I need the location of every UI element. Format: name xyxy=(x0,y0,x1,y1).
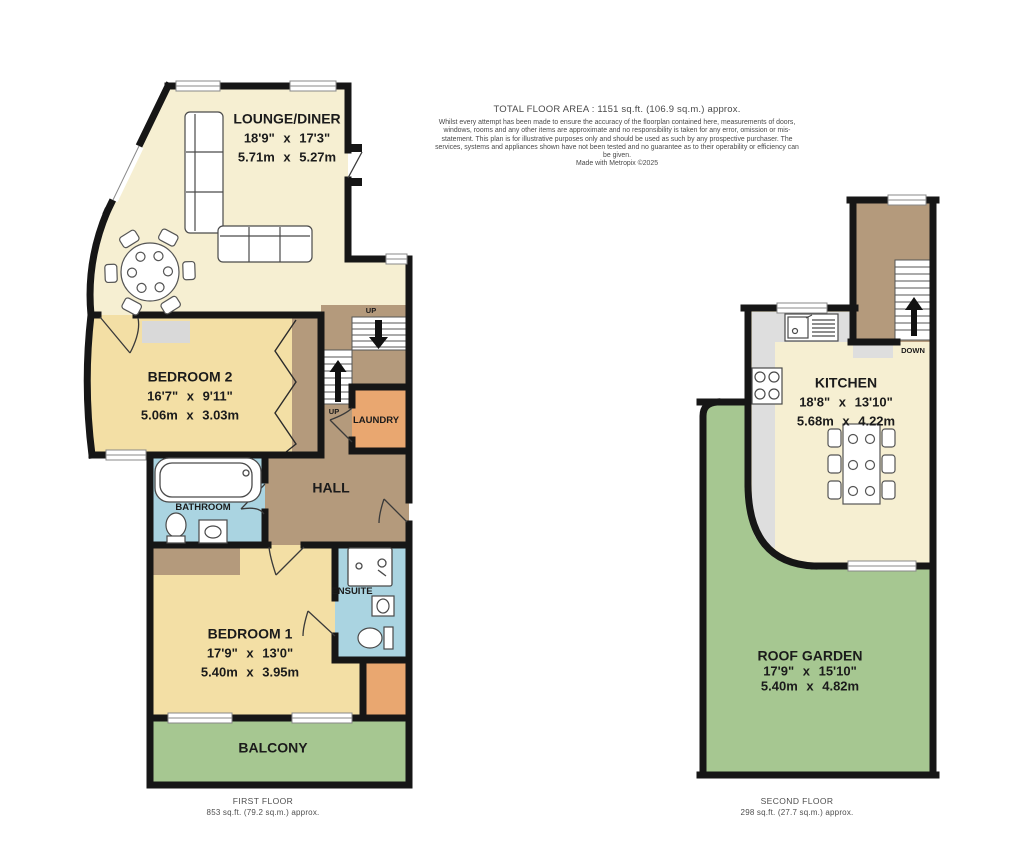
stairs-second-floor xyxy=(895,260,933,340)
bedroom2-rug xyxy=(142,321,190,343)
stairs-up-label-upper: UP xyxy=(366,307,376,315)
stairs-lower-flight xyxy=(324,350,352,404)
second-floor-caption-area: 298 sq.ft. (27.7 sq.m.) approx. xyxy=(741,807,854,818)
total-floor-area: TOTAL FLOOR AREA : 1151 sq.ft. (106.9 sq… xyxy=(431,104,803,115)
sofa-vertical xyxy=(185,112,223,233)
second-floor-caption: SECOND FLOOR 298 sq.ft. (27.7 sq.m.) app… xyxy=(741,796,854,818)
kitchen-sink xyxy=(785,314,838,341)
stairs-upper-flight xyxy=(352,317,406,350)
door-recess-stub-bottom xyxy=(346,178,362,186)
disclaimer-text: Whilst every attempt has been made to en… xyxy=(431,119,803,160)
sink-ensuite xyxy=(372,596,394,616)
kitchen-label: KITCHEN 18'8" x 13'10" 5.68m x 4.22m xyxy=(797,374,895,431)
metropix-credit: Made with Metropix ©2025 xyxy=(431,160,803,168)
bathroom-label: BATHROOM xyxy=(175,503,230,513)
ensuite-label: ENSUITE xyxy=(331,587,372,597)
second-floor-caption-title: SECOND FLOOR xyxy=(741,796,854,807)
roof-garden-label: ROOF GARDEN 17'9" x 15'10" 5.40m x 4.82m xyxy=(758,649,863,694)
bedroom1-wardrobe xyxy=(153,548,240,575)
kitchen-hob xyxy=(752,368,782,404)
bedroom2-label: BEDROOM 2 16'7" x 9'11" 5.06m x 3.03m xyxy=(141,368,239,425)
sink-bathroom xyxy=(199,520,227,543)
bathtub xyxy=(155,458,261,502)
balcony-label: BALCONY xyxy=(238,739,307,758)
bedroom2-wardrobe xyxy=(292,318,321,452)
stairs-down-label: DOWN xyxy=(901,347,925,355)
cupboard-area xyxy=(363,660,409,718)
stairs-up-label-lower: UP xyxy=(329,408,339,416)
kitchen-table xyxy=(828,424,895,504)
first-floor-caption: FIRST FLOOR 853 sq.ft. (79.2 sq.m.) appr… xyxy=(207,796,320,818)
floorplan-canvas: TOTAL FLOOR AREA : 1151 sq.ft. (106.9 sq… xyxy=(0,0,1024,866)
lounge-label: LOUNGE/DINER 18'9" x 17'3" 5.71m x 5.27m xyxy=(233,110,340,167)
bedroom1-label: BEDROOM 1 17'9" x 13'0" 5.40m x 3.95m xyxy=(201,625,299,682)
first-floor-caption-area: 853 sq.ft. (79.2 sq.m.) approx. xyxy=(207,807,320,818)
toilet-ensuite xyxy=(358,627,393,649)
shower-ensuite xyxy=(348,548,392,586)
door-recess-stub-top xyxy=(346,144,362,152)
laundry-label: LAUNDRY xyxy=(353,416,399,426)
toilet-bathroom xyxy=(166,513,186,543)
first-floor-caption-title: FIRST FLOOR xyxy=(207,796,320,807)
hall-label: HALL xyxy=(312,479,349,498)
sofa-horizontal xyxy=(218,226,312,262)
disclaimer-block: TOTAL FLOOR AREA : 1151 sq.ft. (106.9 sq… xyxy=(431,104,803,169)
